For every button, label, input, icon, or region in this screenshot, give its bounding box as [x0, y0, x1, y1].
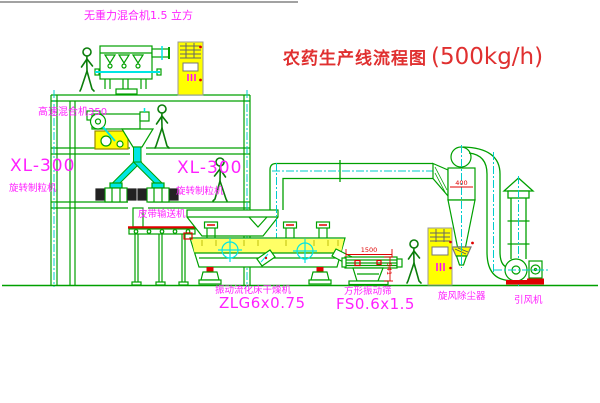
control-cabinet-bottom: [428, 228, 452, 285]
dim-screen-length: 1500: [361, 246, 378, 254]
title-capacity: (500kg/h): [431, 44, 543, 70]
person-icon: [155, 105, 169, 148]
label-granulator-right-model: XL-300: [177, 160, 242, 177]
label-fan: 引风机: [514, 296, 543, 306]
label-cyclone: 旋风除尘器: [438, 292, 486, 302]
dim-cyclone-width: 400: [455, 179, 467, 187]
dim-screen-height: 541: [385, 263, 393, 275]
y-chute: [113, 147, 163, 183]
title-text: 农药生产线流程图: [283, 44, 427, 69]
label-granulator-left-model: XL-300: [10, 158, 75, 175]
label-highspeed-mixer: 高速混合机350: [38, 108, 107, 118]
label-gravity-mixer: 无重力混合机1.5 立方: [84, 10, 193, 21]
label-belt-conveyor: 皮带输送机: [138, 210, 186, 220]
label-dryer-model: ZLG6x0.75: [219, 296, 306, 311]
label-granulator-left-name: 旋转制粒机: [9, 184, 57, 194]
person-icon: [80, 48, 94, 91]
belt-conveyor-machine: [128, 228, 196, 286]
gravity-mixer-machine: [95, 46, 169, 94]
feed-hopper: [187, 210, 278, 236]
exhaust-duct: [270, 160, 452, 242]
label-screen-model: FS0.6x1.5: [336, 297, 415, 312]
person-icon: [407, 240, 421, 283]
granulator-left-machine: [96, 183, 136, 202]
label-granulator-right-name: 旋转制粒机: [176, 187, 224, 197]
diagram-title: 农药生产线流程图 (500kg/h): [283, 44, 543, 70]
flow-diagram-canvas: 1500 541 400: [0, 0, 600, 403]
granulator-right-machine: [138, 183, 178, 202]
control-cabinet-top: [178, 42, 203, 95]
